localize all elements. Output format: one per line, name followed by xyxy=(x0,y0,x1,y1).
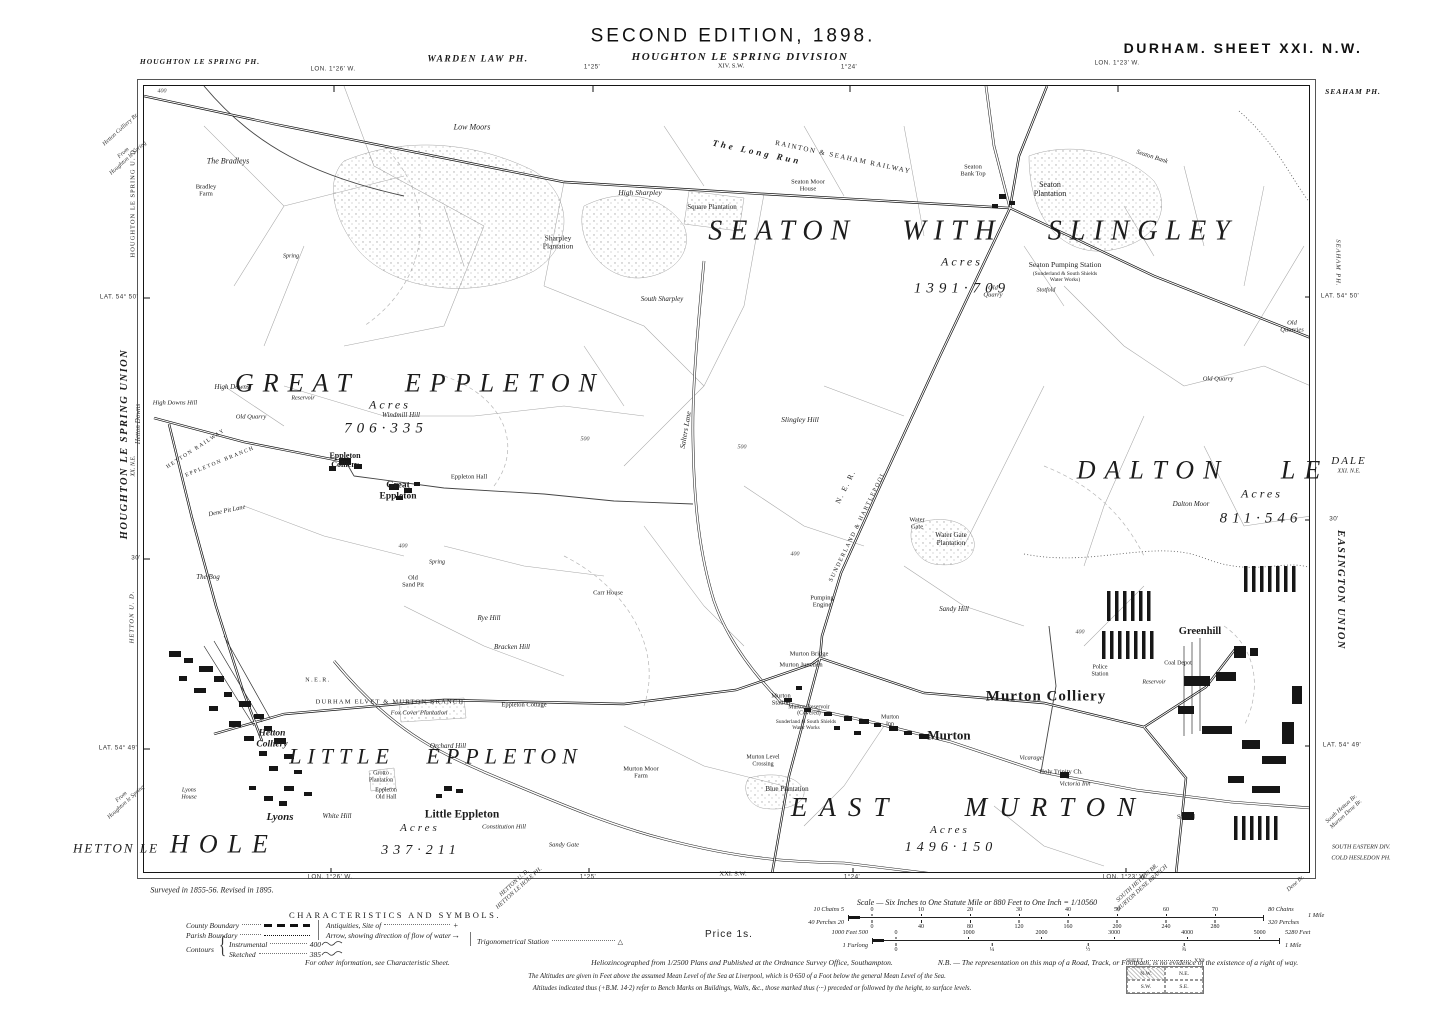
legend-divider xyxy=(318,920,319,940)
scale-tick: 240 xyxy=(1162,920,1171,930)
chains-right-label: 80 Chains xyxy=(1268,906,1294,913)
mile-label: 1 Mile xyxy=(1308,912,1324,919)
feet-left-label: 1000 Feet 500 xyxy=(790,929,868,936)
map-label: LAT. 54° 50' xyxy=(1321,292,1359,299)
map-label: DALE xyxy=(1331,455,1367,467)
legend-more-info: For other information, see Characteristi… xyxy=(305,958,450,967)
sheet-index-grid: N.W. N.E. S.W. S.E. xyxy=(1126,966,1204,994)
legend-label: Trigonometrical Station xyxy=(477,937,549,946)
legend-divider xyxy=(470,932,471,946)
scale-tick: 20 xyxy=(967,907,973,917)
legend-contours-instrumental: Instrumental 400 xyxy=(229,940,343,949)
map-label: South Hetton Br. Murton Dene Br. xyxy=(1324,793,1363,830)
map-label: SEAHAM PH. xyxy=(1334,239,1341,286)
scale-tick: 5000 xyxy=(1254,930,1266,940)
map-label: COLD HESLEDON PH. xyxy=(1331,856,1390,863)
legend-county-boundary: County Boundary xyxy=(186,921,310,930)
map-label: LAT. 54° 49' xyxy=(1323,741,1361,748)
mile-label: 1 Mile xyxy=(1285,942,1301,949)
legend-label: Instrumental xyxy=(229,940,267,949)
legend-label: Contours xyxy=(186,945,214,954)
scale-tick: 40 xyxy=(918,920,924,930)
adjoining-sheet-east: XXI. N.E. xyxy=(1338,469,1361,476)
trig-station-symbol: △ xyxy=(618,938,623,946)
edition-title: SECOND EDITION, 1898. xyxy=(591,25,876,46)
map-label: SOUTH EASTERN DIV. xyxy=(1332,845,1390,852)
leader-dots xyxy=(384,924,450,925)
map-label: HOUGHTON LE SPRING PH. xyxy=(140,58,260,66)
contour-wave-icon xyxy=(321,941,343,948)
buildings xyxy=(169,194,1302,840)
survey-note: Surveyed in 1855-56. Revised in 1895. xyxy=(150,887,273,896)
scale-tick: ½ xyxy=(1086,943,1091,953)
sheet-index: SHEET XXI N.W. N.E. S.W. S.E. xyxy=(1126,958,1204,994)
rights-of-way-note: N.B. — The representation on this map of… xyxy=(938,958,1298,967)
division-title: HOUGHTON LE SPRING DIVISION xyxy=(632,51,849,63)
scale-tick: 0 xyxy=(895,930,898,940)
map-label: LAT. 54° 49' xyxy=(99,744,137,751)
map-label: HOUGHTON LE SPRING U. D. xyxy=(129,147,136,258)
scale-tick: 3000 xyxy=(1108,930,1120,940)
parish-boundary-symbol xyxy=(264,935,310,936)
leader-dots xyxy=(259,953,307,954)
map-label: LON. 1°26' W. xyxy=(311,65,356,72)
scale-tick: ¼ xyxy=(990,943,995,953)
map-label: HOUGHTON LE SPRING UNION xyxy=(119,349,131,540)
scale-tick: 0 xyxy=(871,920,874,930)
leader-dots xyxy=(1146,960,1191,961)
scale-tick: 120 xyxy=(1015,920,1024,930)
scale-tick: 4000 xyxy=(1181,930,1193,940)
legend-label: Arrow, showing direction of flow of wate… xyxy=(326,931,451,940)
adjoining-sheet-north: XIV. S.W. xyxy=(718,62,744,69)
sheet-index-cell-ne: N.E. xyxy=(1165,967,1203,980)
legend-note: For other information, see Characteristi… xyxy=(305,958,450,967)
scale-tick: 70 xyxy=(1212,907,1218,917)
legend-label: Sketched xyxy=(229,950,256,959)
benchmark-note: Altitudes indicated thus (+B.M. 14·2) re… xyxy=(533,985,972,992)
sheet-index-cell-nw: N.W. xyxy=(1127,967,1165,980)
scale-bar-block xyxy=(872,939,884,942)
map-label: WARDEN LAW PH. xyxy=(427,55,528,66)
map-line-work xyxy=(144,86,1310,873)
map-label: SEAHAM PH. xyxy=(1325,88,1381,96)
leader-dots xyxy=(240,934,261,935)
legend-water-arrow: Arrow, showing direction of flow of wate… xyxy=(326,931,466,940)
sheet-index-number: XXI xyxy=(1194,958,1204,964)
scale-tick: 50 xyxy=(1114,907,1120,917)
legend-label: County Boundary xyxy=(186,921,239,930)
furlong-left-label: 1 Furlong xyxy=(802,942,868,949)
map-label: Hetton Colliery Br. xyxy=(102,112,141,148)
sheet-index-cell-se: S.E. xyxy=(1165,980,1203,993)
scale-tick: 200 xyxy=(1113,920,1122,930)
map-label: 1°25' xyxy=(584,63,600,70)
scale-tick: 60 xyxy=(1163,907,1169,917)
leader-dots xyxy=(552,940,615,941)
scale-tick: 1000 xyxy=(963,930,975,940)
leader-dots xyxy=(242,924,261,925)
contours-brace: { xyxy=(219,934,226,961)
feet-right-label: 5280 Feet xyxy=(1285,929,1310,936)
legend-label: Antiquities, Site of xyxy=(326,921,381,930)
feet-scale-bar: 010002000300040005000 0¼½¾ xyxy=(872,940,1280,941)
sheet-title: DURHAM. SHEET XXI. N.W. xyxy=(1124,41,1363,57)
legend-parish-boundary: Parish Boundary xyxy=(186,931,310,940)
leader-dots xyxy=(270,943,306,944)
map-frame xyxy=(143,85,1310,873)
scale-title: Scale — Six Inches to One Statute Mile o… xyxy=(857,898,1097,907)
map-label: LAT. 54° 50' xyxy=(100,293,138,300)
map-label: 30' xyxy=(1329,515,1338,522)
legend-trig-station: Trigonometrical Station △ xyxy=(477,937,623,946)
sheet-index-cell-sw: S.W. xyxy=(1127,980,1165,993)
publisher-imprint: Heliozincographed from 1/2500 Plans and … xyxy=(591,958,893,967)
legend-title: CHARACTERISTICS AND SYMBOLS. xyxy=(289,910,501,920)
os-map-sheet-page: SECOND EDITION, 1898.HOUGHTON LE SPRING … xyxy=(0,0,1445,1022)
perches-left-label: 40 Perches 20 xyxy=(762,919,844,926)
scale-tick: 0 xyxy=(895,943,898,953)
contour-value: 400 xyxy=(310,940,321,949)
scale-tick: 2000 xyxy=(1036,930,1048,940)
chains-scale-bar: 010203040506070 04080120160200240280 xyxy=(848,917,1264,918)
scale-tick: 160 xyxy=(1064,920,1073,930)
map-label: LON. 1°23' W. xyxy=(1095,59,1140,66)
scale-tick: 80 xyxy=(967,920,973,930)
flow-arrow-icon: → xyxy=(451,931,460,940)
perches-right-label: 320 Perches xyxy=(1268,919,1299,926)
map-label: HETTON U. D. xyxy=(128,591,135,644)
scale-tick: 40 xyxy=(1065,907,1071,917)
legend-contours: Contours xyxy=(186,945,214,954)
altitude-note: The Altitudes are given in Feet above th… xyxy=(528,973,946,980)
scale-bar-block xyxy=(848,916,860,919)
scale-tick: 280 xyxy=(1211,920,1220,930)
plantation-areas xyxy=(333,145,1161,809)
scale-tick: ¾ xyxy=(1182,943,1187,953)
sheet-index-label: SHEET xyxy=(1126,958,1143,964)
scale-tick: 30 xyxy=(1016,907,1022,917)
contour-wave-icon xyxy=(321,951,343,958)
sheet-index-header: SHEET XXI xyxy=(1126,958,1204,964)
legend-label: Parish Boundary xyxy=(186,931,237,940)
legend-antiquities: Antiquities, Site of + xyxy=(326,921,458,930)
county-boundary-symbol xyxy=(264,924,310,927)
scale-tick: 0 xyxy=(871,907,874,917)
map-label: 1°24' xyxy=(841,63,857,70)
price-label: Price 1s. xyxy=(705,929,753,940)
map-label: EASINGTON UNION xyxy=(1334,530,1346,650)
antiquities-symbol: + xyxy=(453,921,458,930)
scale-tick: 10 xyxy=(918,907,924,917)
chains-left-label: 10 Chains 5 xyxy=(770,906,844,913)
